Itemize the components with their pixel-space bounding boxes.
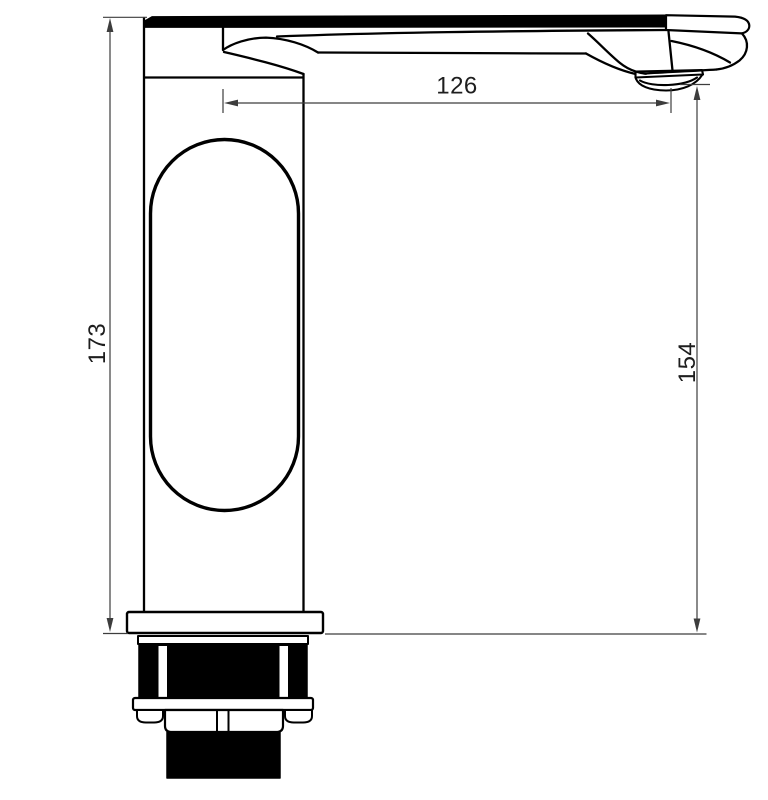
faucet (127, 15, 749, 778)
lever-handle-tip (666, 15, 749, 33)
spout-shoulder-lower (586, 54, 636, 75)
faucet-body-outline (144, 18, 304, 612)
mounting-base (127, 612, 323, 778)
spout-bottom-edge (318, 53, 586, 54)
spout-top-edge (277, 30, 666, 37)
flange-tab-left (137, 710, 163, 723)
dim-label-outlet-height: 154 (674, 342, 701, 384)
basin-mixer-technical-drawing: 173 126 154 (0, 0, 768, 800)
mounting-nut-body (165, 710, 283, 732)
arrowhead-right (656, 100, 670, 107)
flange-tab-right (285, 710, 312, 723)
technical-drawing-canvas: 173 126 154 (0, 0, 768, 800)
spout-nose-divider (669, 32, 673, 71)
threaded-shank (139, 644, 307, 698)
dimension-outlet-height: 154 (325, 85, 710, 635)
body-panel-oval (151, 140, 299, 511)
arrowhead-down (694, 619, 701, 633)
shank-flange (133, 698, 313, 710)
base-collar (138, 636, 308, 644)
mounting-nut (165, 710, 283, 732)
spout-nose-front-band (672, 41, 731, 63)
base-plate (127, 612, 323, 633)
dimensions: 173 126 154 (84, 17, 710, 634)
arrowhead-up (694, 86, 701, 100)
arrowhead-up (107, 18, 114, 32)
supply-shank (167, 732, 280, 778)
threaded-shank-slot-left (159, 646, 168, 697)
dimension-total-height: 173 (84, 17, 147, 633)
arrowhead-left (224, 100, 238, 107)
threaded-shank-slot-right (280, 646, 289, 697)
arrowhead-down (107, 618, 114, 632)
lever-handle-bar (144, 15, 666, 27)
dim-label-spout-reach: 126 (436, 72, 478, 99)
dim-label-total-height: 173 (84, 323, 111, 365)
spout-nose-outline (717, 34, 748, 70)
lever-neck-curves (223, 27, 318, 74)
